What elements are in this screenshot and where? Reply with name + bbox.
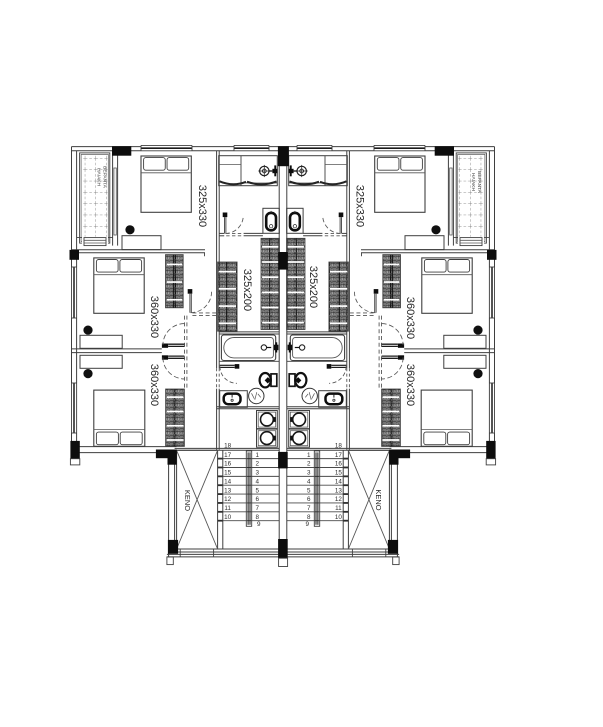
svg-text:13: 13: [224, 487, 232, 494]
svg-text:6: 6: [255, 496, 259, 503]
svg-text:9: 9: [305, 521, 309, 528]
svg-text:11: 11: [335, 505, 342, 512]
svg-text:17: 17: [224, 452, 232, 459]
svg-text:8: 8: [255, 514, 259, 521]
svg-text:5: 5: [307, 487, 311, 494]
svg-text:8: 8: [307, 514, 311, 521]
svg-text:15: 15: [224, 470, 232, 477]
svg-text:3: 3: [255, 470, 259, 477]
svg-text:ΗΛΙΑΚΗ: ΗΛΙΑΚΗ: [470, 173, 476, 191]
svg-text:17: 17: [335, 452, 343, 459]
svg-text:KENO: KENO: [374, 489, 383, 510]
svg-text:360x330: 360x330: [404, 364, 416, 406]
svg-text:360x330: 360x330: [148, 364, 160, 406]
svg-text:ΒΕΡΑΝΤΑ: ΒΕΡΑΝΤΑ: [476, 171, 482, 193]
svg-text:360x330: 360x330: [148, 296, 160, 338]
svg-text:325x200: 325x200: [307, 266, 319, 308]
svg-text:18: 18: [224, 443, 232, 450]
svg-text:3: 3: [307, 470, 311, 477]
svg-text:12: 12: [335, 496, 343, 503]
svg-text:9: 9: [257, 521, 261, 528]
svg-text:18: 18: [335, 443, 343, 450]
svg-text:14: 14: [335, 478, 343, 485]
svg-text:13: 13: [335, 487, 343, 494]
svg-text:1: 1: [255, 452, 259, 459]
svg-text:ΒΕΡΑΝΤΑ: ΒΕΡΑΝΤΑ: [102, 166, 108, 188]
svg-text:4: 4: [307, 478, 311, 485]
svg-text:2: 2: [255, 461, 259, 468]
svg-text:14: 14: [224, 478, 232, 485]
svg-text:2: 2: [307, 461, 311, 468]
svg-text:4: 4: [255, 478, 259, 485]
svg-text:10: 10: [335, 514, 343, 521]
svg-text:ΗΛΙΑΚΗ: ΗΛΙΑΚΗ: [96, 168, 102, 186]
svg-text:1: 1: [307, 452, 311, 459]
svg-text:6: 6: [307, 496, 311, 503]
svg-text:KENO: KENO: [183, 490, 192, 511]
svg-text:12: 12: [224, 496, 232, 503]
svg-text:16: 16: [335, 461, 343, 468]
svg-text:325x200: 325x200: [241, 269, 253, 311]
svg-text:11: 11: [224, 505, 231, 512]
svg-text:15: 15: [335, 470, 343, 477]
svg-text:360x330: 360x330: [404, 297, 416, 339]
svg-text:325x330: 325x330: [353, 185, 365, 227]
svg-text:7: 7: [255, 505, 259, 512]
svg-text:325x330: 325x330: [196, 185, 208, 227]
svg-text:7: 7: [307, 505, 311, 512]
svg-text:5: 5: [255, 487, 259, 494]
svg-text:10: 10: [224, 514, 232, 521]
svg-text:16: 16: [224, 461, 232, 468]
